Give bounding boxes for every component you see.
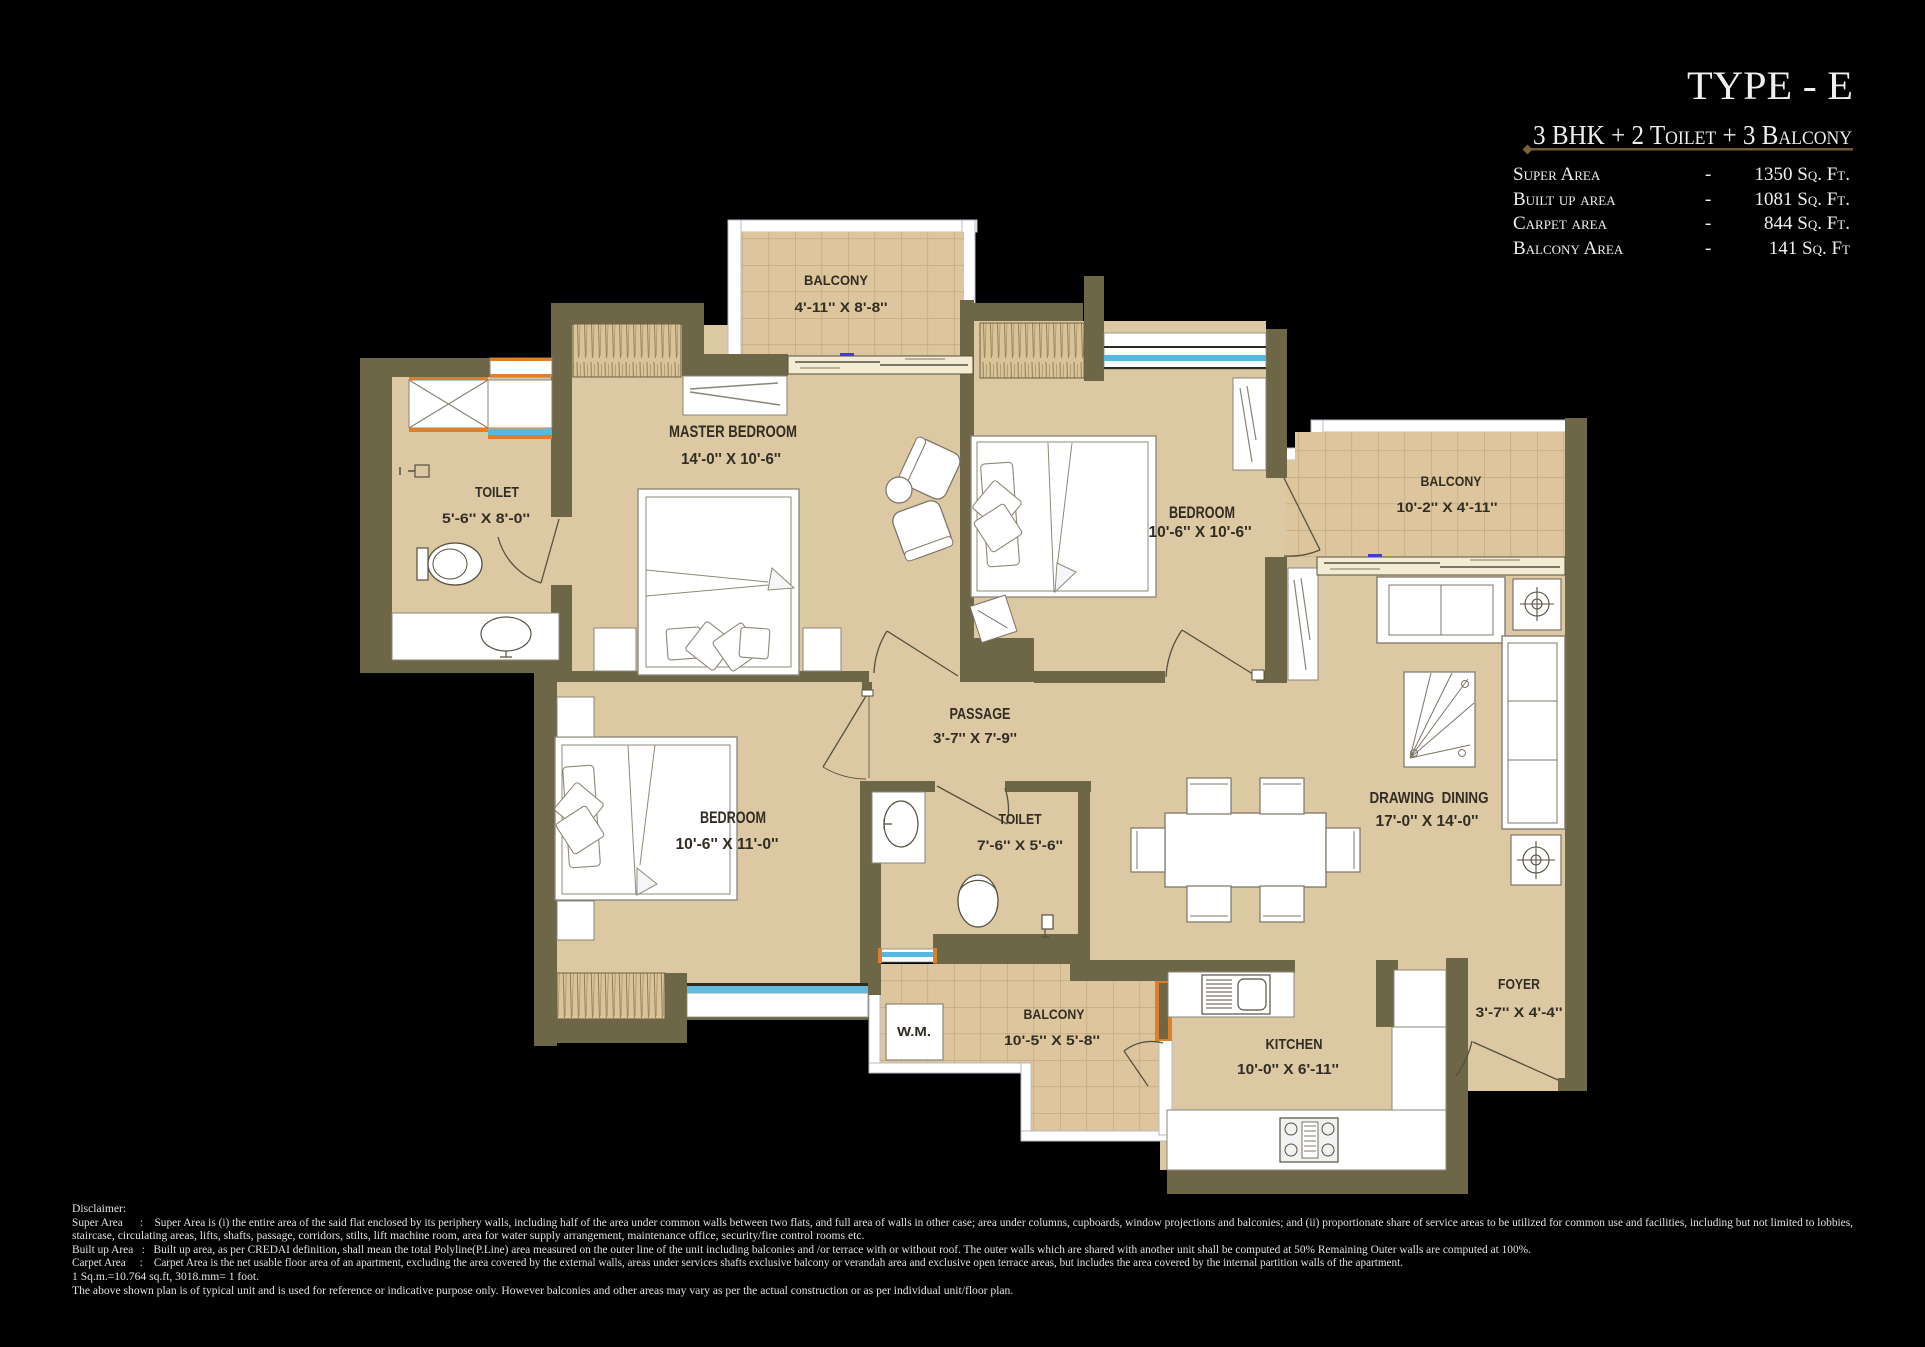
- svg-text:1350 Sq. Ft.: 1350 Sq. Ft.: [1755, 164, 1850, 185]
- svg-text:17'-0'' X 14'-0'': 17'-0'' X 14'-0'': [1376, 813, 1479, 830]
- svg-text:4'-11'' X 8'-8'': 4'-11'' X 8'-8'': [795, 300, 888, 315]
- svg-text:3 BHK + 2 Toilet + 3 Balcony: 3 BHK + 2 Toilet + 3 Balcony: [1533, 120, 1852, 150]
- svg-text:Carpet Area : Carpet Ar: Carpet Area : Carpet Area is the net usa…: [72, 1256, 1403, 1269]
- svg-text:844 Sq. Ft.: 844 Sq. Ft.: [1764, 213, 1850, 234]
- svg-text:-: -: [1705, 238, 1711, 259]
- svg-text:TOILET: TOILET: [475, 485, 519, 501]
- svg-text:Super Area : Super Are: Super Area : Super Area is (i) the entir…: [72, 1216, 1853, 1229]
- svg-text:Carpet area: Carpet area: [1513, 213, 1608, 234]
- svg-text:10'-6'' X 10'-6'': 10'-6'' X 10'-6'': [1149, 524, 1252, 541]
- svg-text:staircase, circulating areas,: staircase, circulating areas, lifts, sha…: [72, 1229, 864, 1242]
- svg-text:Balcony Area: Balcony Area: [1513, 238, 1624, 259]
- svg-text:BEDROOM: BEDROOM: [700, 808, 766, 827]
- svg-text:Built up area: Built up area: [1513, 189, 1616, 210]
- svg-text:10'-6'' X 11'-0'': 10'-6'' X 11'-0'': [676, 836, 779, 853]
- svg-text:FOYER: FOYER: [1498, 976, 1540, 993]
- svg-text:5'-6'' X 8'-0'': 5'-6'' X 8'-0'': [442, 511, 530, 526]
- svg-text:-: -: [1705, 189, 1711, 210]
- svg-text:1081 Sq. Ft.: 1081 Sq. Ft.: [1755, 189, 1850, 210]
- svg-text:1 Sq.m.=10.764 sq.ft, 3018.mm=: 1 Sq.m.=10.764 sq.ft, 3018.mm= 1 foot.: [72, 1270, 259, 1283]
- svg-text:MASTER BEDROOM: MASTER BEDROOM: [669, 422, 797, 441]
- svg-text:TYPE - E: TYPE - E: [1687, 63, 1853, 108]
- svg-text:W.M.: W.M.: [897, 1025, 931, 1039]
- svg-text:10'-5'' X 5'-8'': 10'-5'' X 5'-8'': [1004, 1033, 1100, 1048]
- svg-text:BEDROOM: BEDROOM: [1169, 503, 1235, 522]
- svg-text:14'-0'' X 10'-6'': 14'-0'' X 10'-6'': [681, 451, 781, 468]
- svg-text:7'-6'' X 5'-6'': 7'-6'' X 5'-6'': [977, 838, 1063, 853]
- svg-text:The above shown plan is of typ: The above shown plan is of typical unit …: [72, 1284, 1013, 1297]
- svg-text:141 Sq. Ft: 141 Sq. Ft: [1769, 238, 1850, 259]
- svg-text:KITCHEN: KITCHEN: [1266, 1036, 1323, 1053]
- svg-text:BALCONY: BALCONY: [1024, 1006, 1086, 1022]
- svg-text:DRAWING DINING: DRAWING DINING: [1370, 790, 1489, 807]
- svg-text:TOILET: TOILET: [999, 812, 1042, 828]
- svg-text:10'-2'' X 4'-11'': 10'-2'' X 4'-11'': [1397, 500, 1498, 515]
- svg-text:Built up Area : Built up a: Built up Area : Built up area, as per CR…: [72, 1243, 1531, 1256]
- svg-text:3'-7'' X 7'-9'': 3'-7'' X 7'-9'': [933, 730, 1017, 747]
- svg-text:-: -: [1705, 164, 1711, 185]
- svg-text:-: -: [1705, 213, 1711, 234]
- svg-text:BALCONY: BALCONY: [804, 272, 869, 288]
- svg-text:BALCONY: BALCONY: [1421, 473, 1483, 489]
- svg-text:3'-7'' X 4'-4'': 3'-7'' X 4'-4'': [1476, 1004, 1563, 1020]
- svg-text:Disclaimer:: Disclaimer:: [72, 1202, 126, 1215]
- svg-text:PASSAGE: PASSAGE: [950, 706, 1011, 723]
- svg-text:Super Area: Super Area: [1513, 164, 1601, 185]
- svg-text:10'-0'' X 6'-11'': 10'-0'' X 6'-11'': [1237, 1062, 1339, 1078]
